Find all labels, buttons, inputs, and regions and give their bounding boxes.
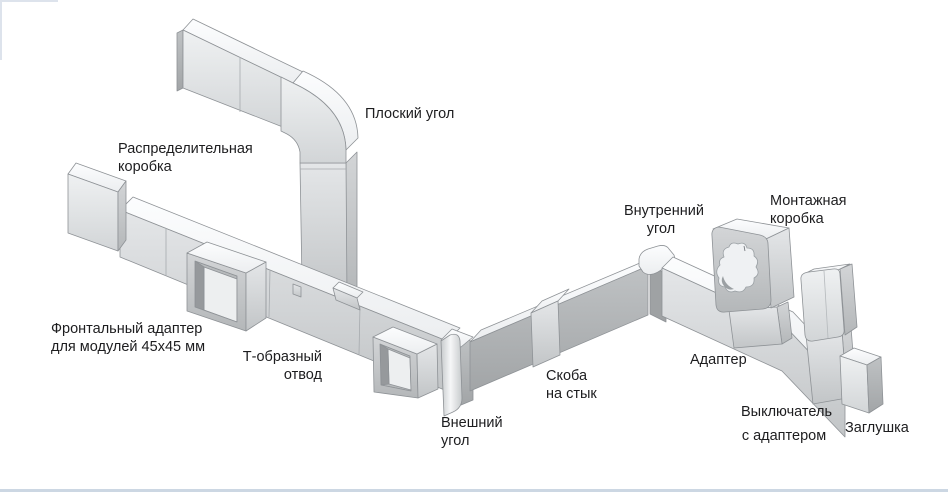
label-end-cap: Заглушка — [845, 420, 909, 438]
label-inner-corner: Внутренний угол — [624, 203, 698, 238]
label-t-branch: Т-образный отвод — [238, 349, 322, 384]
label-outer-corner: Внешний угол — [441, 415, 503, 450]
bottom-rule — [0, 489, 948, 492]
outer-corner-3d — [441, 329, 473, 416]
end-cap-3d — [840, 348, 883, 413]
catalog-illustration: Распределительная коробка Плоский угол Ф… — [0, 0, 948, 496]
label-mounting-box: Монтажная коробка — [770, 193, 846, 228]
label-flat-angle: Плоский угол — [365, 106, 454, 124]
switch-3d — [801, 264, 857, 341]
label-switch-with-adapter: Выключатель с адаптером — [741, 400, 827, 448]
label-front-adapter: Фронтальный адаптер для модулей 45х45 мм — [51, 321, 205, 356]
mounting-box-3d — [712, 219, 794, 312]
label-adapter: Адаптер — [690, 352, 747, 370]
label-joint-clip: Скоба на стык — [546, 368, 597, 403]
label-distribution-box: Распределительная коробка — [118, 141, 253, 176]
distribution-box-3d — [68, 163, 126, 251]
